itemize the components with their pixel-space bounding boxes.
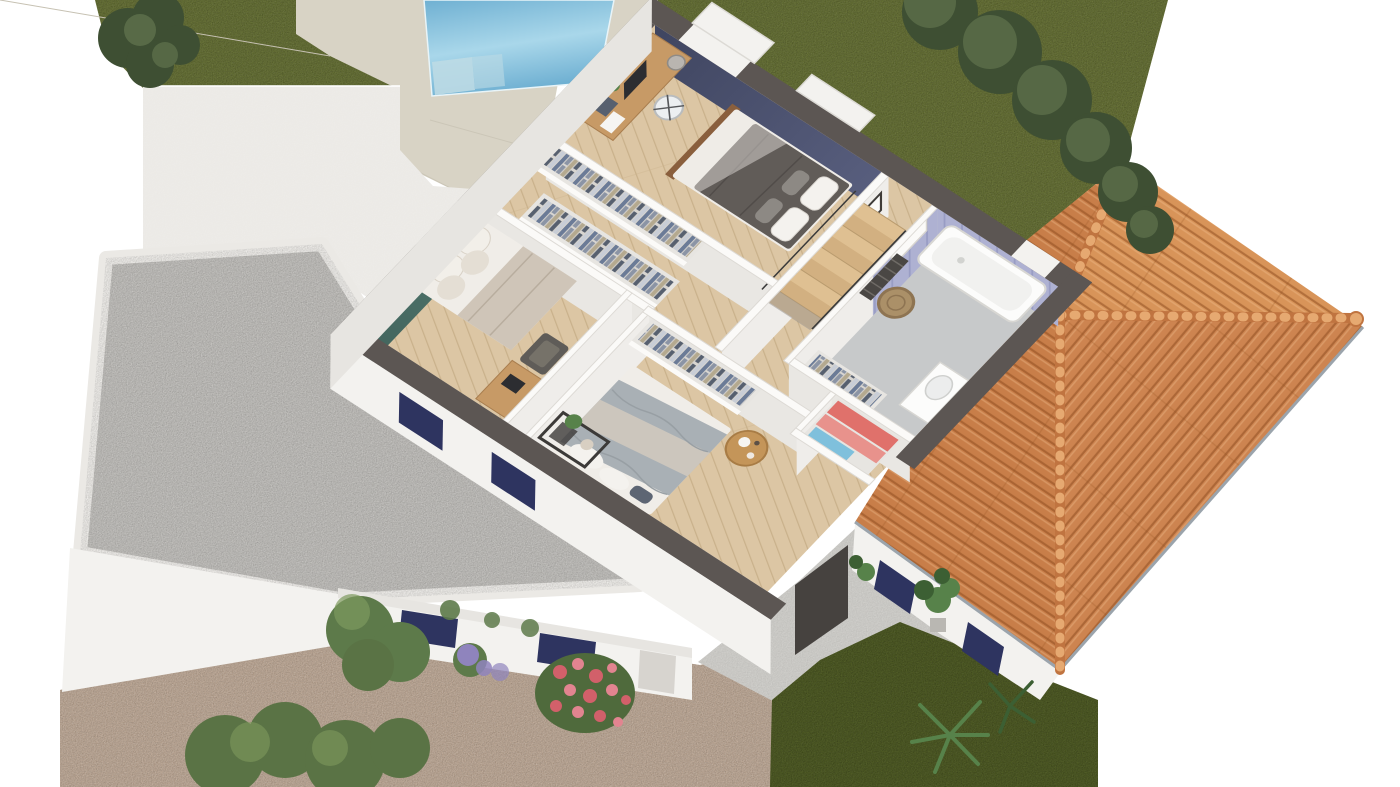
front-door	[638, 650, 676, 694]
pool-step	[472, 54, 505, 89]
ridge-finial	[1349, 312, 1363, 326]
climbing-plant	[484, 612, 500, 628]
climbing-plant	[521, 619, 539, 637]
climbing-plant	[440, 600, 460, 620]
pool-step	[432, 57, 475, 95]
floorplan-render	[0, 0, 1400, 787]
pink-roses	[535, 653, 635, 733]
scene-canvas	[0, 0, 1400, 787]
